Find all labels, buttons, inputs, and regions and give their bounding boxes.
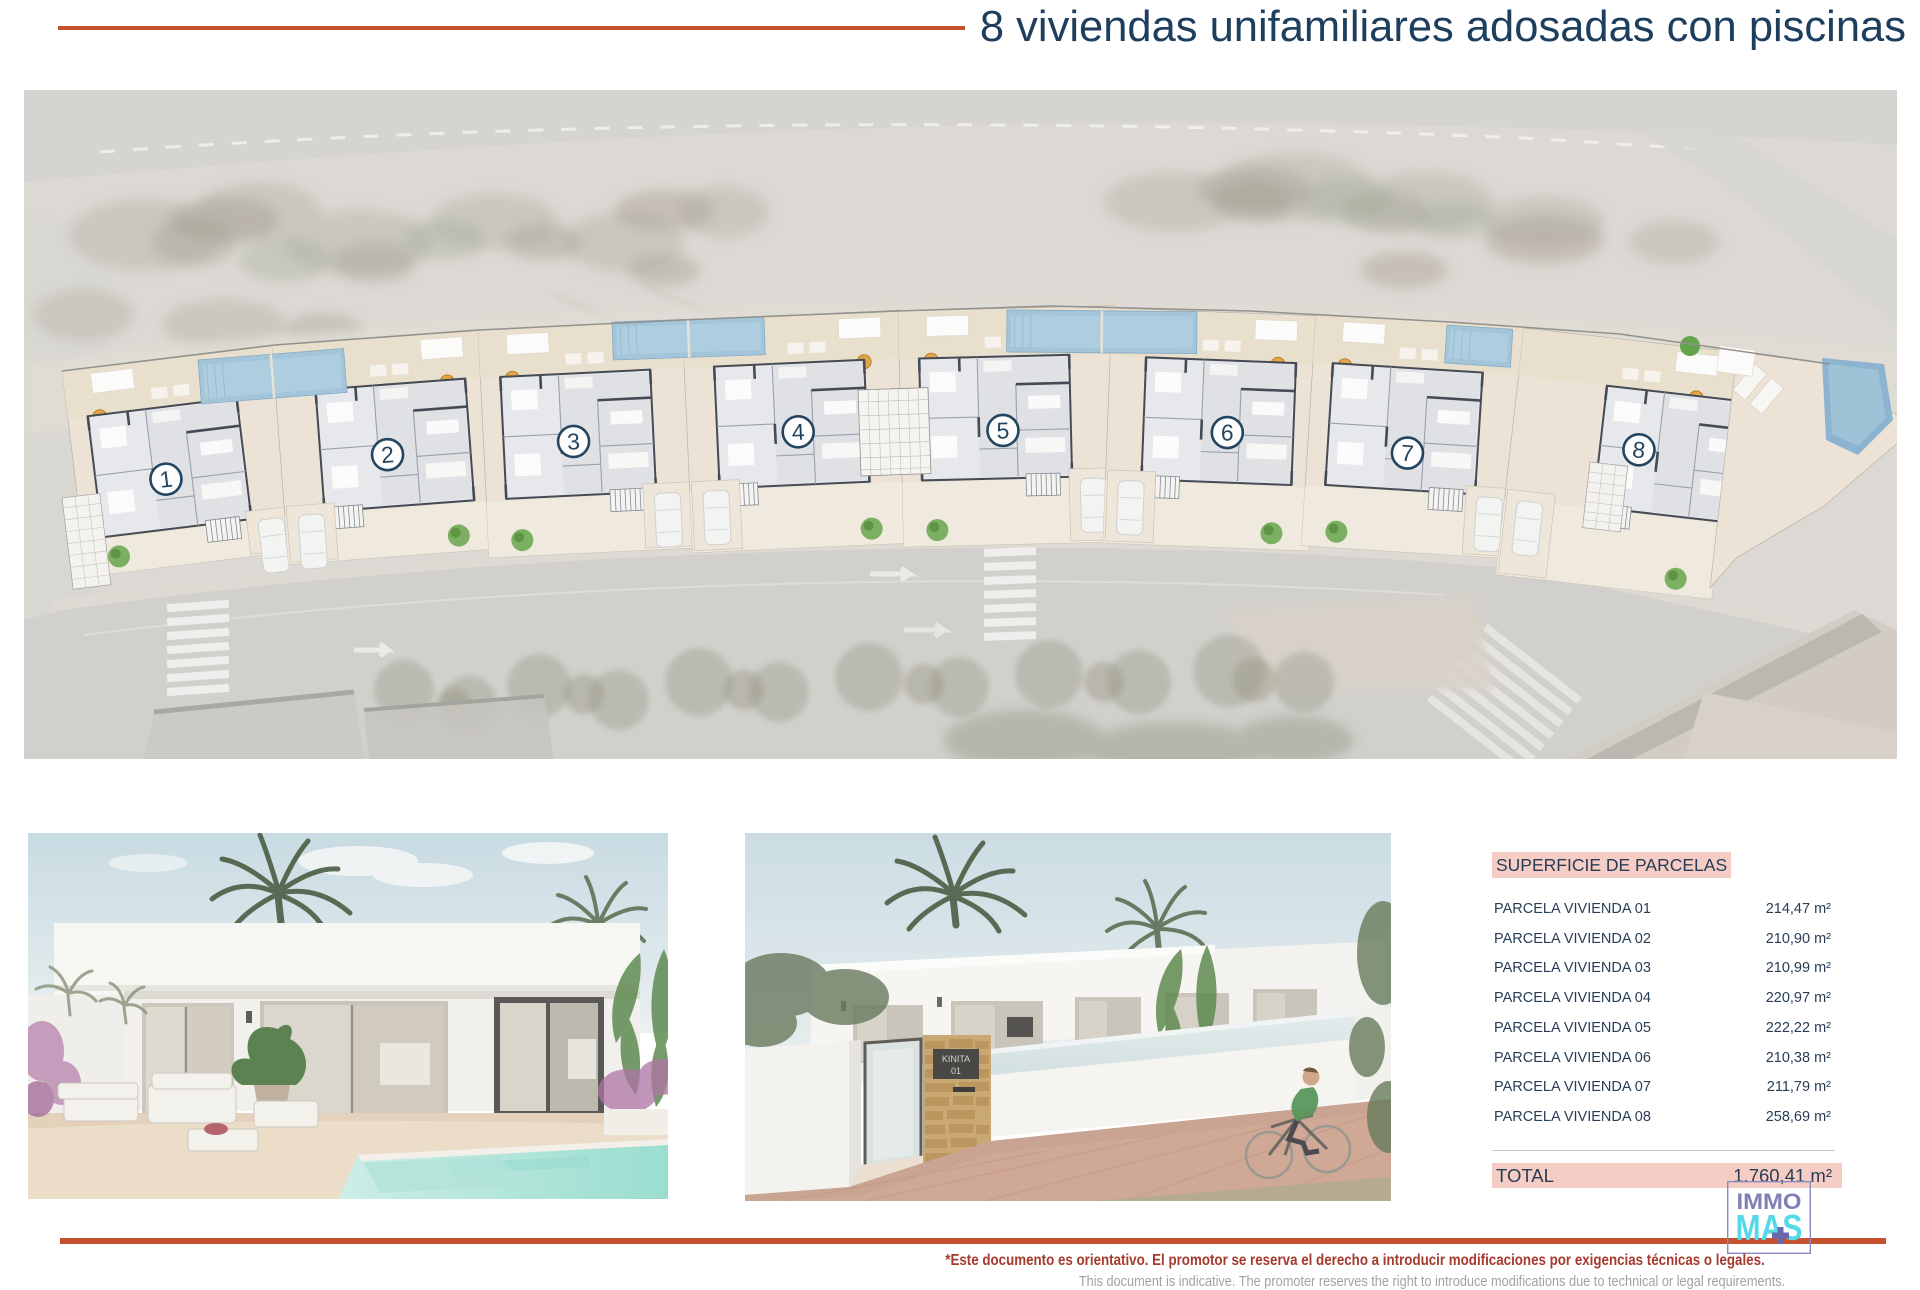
svg-text:5: 5 (996, 417, 1009, 443)
svg-text:7: 7 (1400, 440, 1414, 467)
svg-text:KINITA: KINITA (942, 1054, 970, 1064)
svg-text:MAS: MAS (1736, 1207, 1803, 1248)
svg-text:2: 2 (380, 441, 395, 468)
svg-text:6: 6 (1220, 419, 1234, 445)
svg-text:3: 3 (567, 428, 581, 455)
svg-text:01: 01 (951, 1066, 961, 1076)
svg-text:4: 4 (791, 419, 805, 446)
